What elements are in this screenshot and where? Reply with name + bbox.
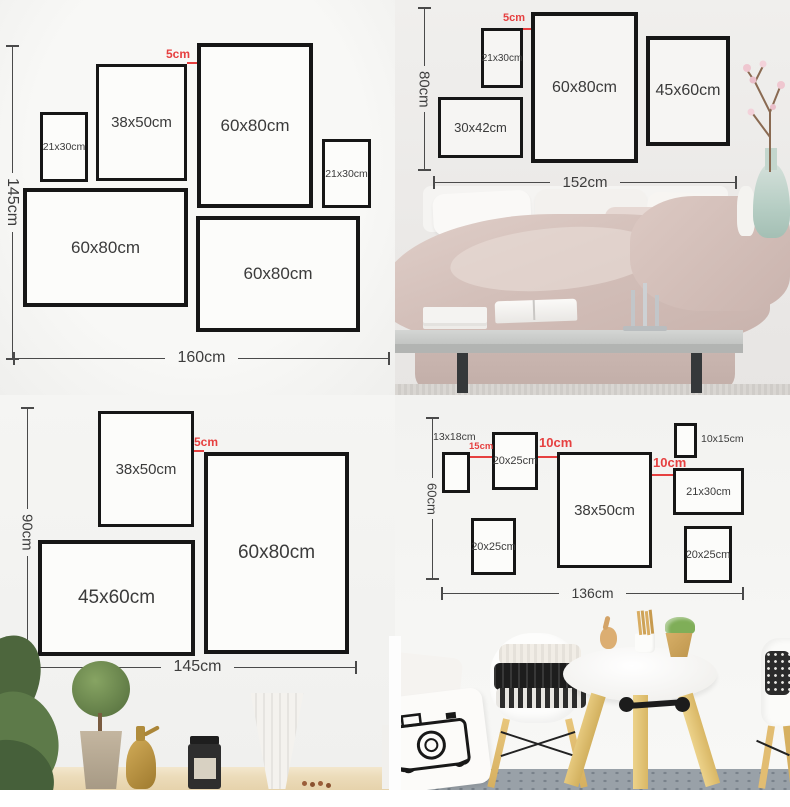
dimension-line xyxy=(238,358,388,359)
folded-pattern-blanket xyxy=(496,688,586,708)
frame-label-10x15: 10x15cm xyxy=(701,433,744,445)
bench-leg xyxy=(457,353,468,393)
frame-38x50: 38x50cm xyxy=(557,452,652,568)
panel-layout-160x145: 145cm 21x30cm 38x50cm 60x80cm 21x30cm 60… xyxy=(0,0,395,395)
width-dimension: 152cm xyxy=(433,174,737,190)
height-dimension: 90cm xyxy=(20,407,34,658)
frame-21x30-left: 21x30cm xyxy=(40,112,88,182)
frame-label: 38x50cm xyxy=(111,114,172,131)
frame-20x25-top: 20x25cm xyxy=(492,432,538,490)
frame-label: 60x80cm xyxy=(244,264,313,284)
frame-label: 21x30cm xyxy=(482,53,523,64)
dimension-line xyxy=(424,112,425,169)
height-dimension-label: 80cm xyxy=(416,66,433,113)
terracotta-pot xyxy=(80,731,122,789)
frame-label: 38x50cm xyxy=(116,461,177,478)
frame-60x80: 60x80cm xyxy=(531,12,638,163)
frame-38x50: 38x50cm xyxy=(98,411,194,527)
open-book xyxy=(495,299,578,324)
frame-label: 45x60cm xyxy=(656,82,721,100)
width-dimension-label: 160cm xyxy=(165,349,237,367)
panel-bedroom-152x80: 80cm 21x30cm 60x80cm 45x60cm 30x42cm 5cm… xyxy=(395,0,790,395)
frame-60x80: 60x80cm xyxy=(204,452,349,654)
candlestick xyxy=(643,283,647,330)
spray-spout xyxy=(143,725,160,737)
frame-label: 21x30cm xyxy=(325,168,368,180)
frame-label: 38x50cm xyxy=(574,502,635,519)
width-dimension: 136cm xyxy=(441,585,744,601)
frame-label: 45x60cm xyxy=(78,587,155,609)
jar-label xyxy=(194,758,216,779)
wooden-toy xyxy=(600,627,617,649)
leg-joint xyxy=(619,697,634,712)
dimension-line xyxy=(12,47,13,173)
dimension-line xyxy=(234,667,355,668)
frame-21x30: 21x30cm xyxy=(481,28,523,88)
panel-layout-136x60: 60cm 13x18cm 20x25cm 38x50cm 10x15cm 21x… xyxy=(395,395,790,790)
frame-layout-collage: 145cm 21x30cm 38x50cm 60x80cm 21x30cm 60… xyxy=(0,0,790,807)
frame-label: 60x80cm xyxy=(552,79,617,97)
frame-30x42: 30x42cm xyxy=(438,97,523,158)
table-leg-center xyxy=(633,695,648,789)
gap-5cm-label: 5cm xyxy=(194,435,218,449)
dimension-line xyxy=(12,232,13,358)
frame-label: 20x25cm xyxy=(493,455,538,467)
berries xyxy=(302,781,307,786)
blossom-branch xyxy=(725,52,790,172)
gap-10cm-label: 10cm xyxy=(653,455,686,470)
frame-45x60: 45x60cm xyxy=(646,36,730,146)
succulent xyxy=(665,617,695,635)
frame-label: 20x25cm xyxy=(686,549,731,561)
candlestick-base xyxy=(623,326,667,331)
gap-5cm-label: 5cm xyxy=(503,12,525,24)
dimension-line xyxy=(432,519,433,578)
frame-20x25-bottom-right: 20x25cm xyxy=(684,526,732,583)
pencils xyxy=(637,611,642,635)
gap-15cm-label: 15cm xyxy=(469,441,493,452)
dimension-cap xyxy=(355,661,357,674)
dimension-line xyxy=(443,593,559,594)
height-dimension: 145cm xyxy=(5,45,19,360)
frame-20x25-bottom-left: 20x25cm xyxy=(471,518,516,575)
bench-top xyxy=(395,330,743,344)
frame-21x30: 21x30cm xyxy=(673,468,744,515)
floor-rug xyxy=(395,384,790,395)
book-stack xyxy=(423,307,487,323)
gap-10cm-line xyxy=(538,456,557,458)
pencil-cup xyxy=(635,633,655,653)
height-dimension: 80cm xyxy=(417,7,431,171)
glass-vase xyxy=(753,164,790,238)
bench-leg xyxy=(691,353,702,393)
chair-right-cushion xyxy=(765,651,790,695)
dimension-line xyxy=(15,358,165,359)
topiary-trunk xyxy=(98,713,102,733)
frame-38x50: 38x50cm xyxy=(96,64,187,181)
dimension-line xyxy=(27,409,28,509)
dimension-cap xyxy=(742,587,744,600)
photo-seam xyxy=(389,636,401,790)
gap-15cm-line xyxy=(470,456,492,458)
gap-10cm-line xyxy=(652,474,673,476)
height-dimension-label: 145cm xyxy=(3,173,21,231)
frame-label: 21x30cm xyxy=(43,141,86,153)
candlestick xyxy=(631,290,635,330)
frame-13x18 xyxy=(442,452,470,493)
dimension-line xyxy=(435,182,550,183)
frame-60x80-portrait: 60x80cm xyxy=(197,43,313,208)
leg-joint xyxy=(675,697,690,712)
width-dimension: 160cm xyxy=(13,350,390,366)
gap-5cm-line xyxy=(194,450,204,452)
dimension-line xyxy=(620,182,735,183)
frame-label: 60x80cm xyxy=(71,238,140,258)
dimension-line xyxy=(424,9,425,66)
dimension-line xyxy=(626,593,742,594)
width-dimension-label: 145cm xyxy=(161,658,233,676)
gap-5cm-label: 5cm xyxy=(166,47,190,61)
height-dimension-label: 90cm xyxy=(19,509,36,556)
frame-label: 60x80cm xyxy=(221,116,290,136)
dimension-cap xyxy=(735,176,737,189)
frame-label: 21x30cm xyxy=(686,486,731,498)
height-dimension-label: 60cm xyxy=(425,478,440,520)
gap-5cm-line xyxy=(523,28,531,30)
topiary-ball xyxy=(72,661,130,717)
camera-print xyxy=(395,700,479,784)
frame-60x80-landscape-left: 60x80cm xyxy=(23,188,188,307)
dimension-cap xyxy=(388,352,390,365)
panel-layout-145x90: 90cm 38x50cm 60x80cm 45x60cm 5cm 145cm xyxy=(0,395,395,790)
candlestick xyxy=(655,295,659,330)
bench-edge xyxy=(395,344,743,353)
frame-label: 20x25cm xyxy=(471,541,516,553)
width-dimension-label: 136cm xyxy=(559,585,625,601)
table-top xyxy=(563,647,717,701)
frame-10x15 xyxy=(674,423,697,458)
frame-label: 30x42cm xyxy=(454,120,507,135)
width-dimension-label: 152cm xyxy=(550,174,619,191)
dimension-cap xyxy=(418,169,431,171)
dimension-line xyxy=(432,419,433,478)
frame-60x80-landscape-right: 60x80cm xyxy=(196,216,360,332)
frame-45x60: 45x60cm xyxy=(38,540,195,656)
frame-label: 60x80cm xyxy=(238,542,315,564)
gap-5cm-line xyxy=(187,62,197,64)
dimension-cap xyxy=(426,578,439,580)
gap-10cm-label: 10cm xyxy=(539,435,572,450)
brass-spray-bottle xyxy=(126,739,156,789)
frame-21x30-right: 21x30cm xyxy=(322,139,371,208)
